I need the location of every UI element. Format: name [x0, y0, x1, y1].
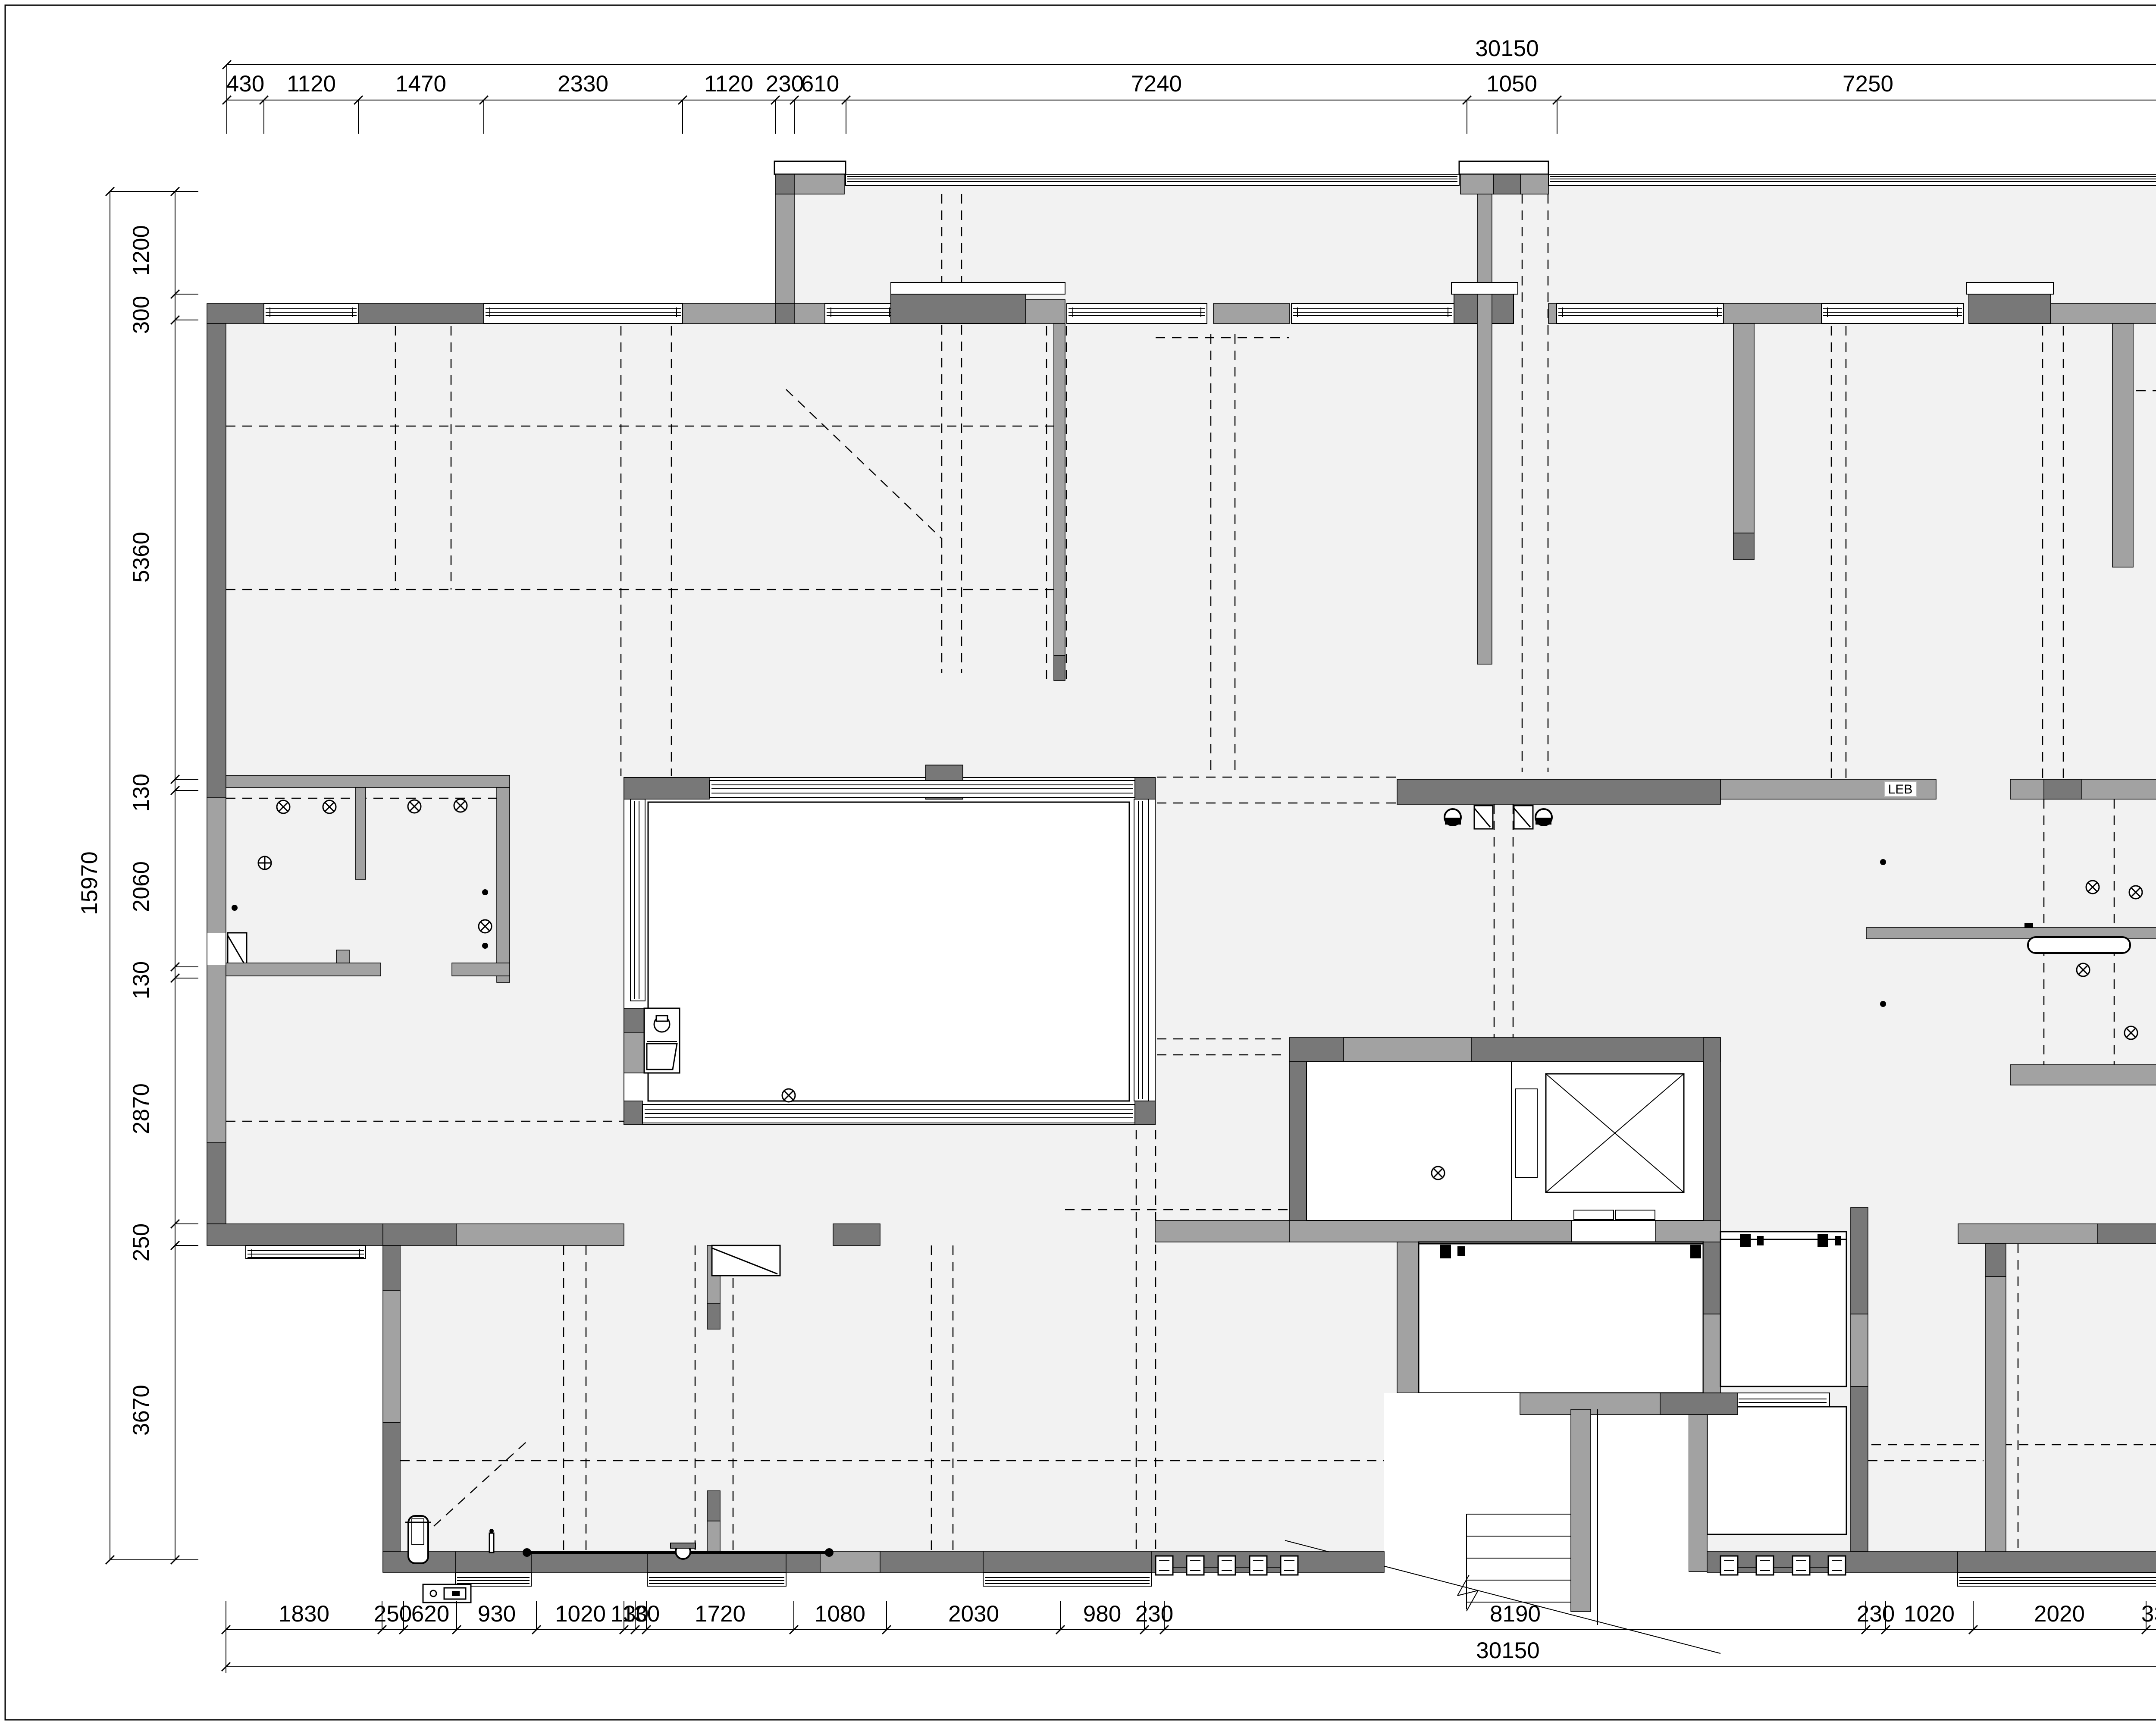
- svg-text:8190: 8190: [1490, 1601, 1541, 1627]
- svg-text:230: 230: [1857, 1601, 1895, 1627]
- svg-text:330: 330: [2141, 1601, 2156, 1627]
- svg-text:2020: 2020: [2034, 1601, 2085, 1627]
- svg-text:1080: 1080: [815, 1601, 865, 1627]
- svg-text:930: 930: [478, 1601, 516, 1627]
- svg-text:1020: 1020: [1904, 1601, 1955, 1627]
- svg-text:610: 610: [801, 71, 839, 97]
- svg-text:1020: 1020: [555, 1601, 606, 1627]
- svg-text:1050: 1050: [1486, 71, 1537, 97]
- svg-text:980: 980: [1083, 1601, 1121, 1627]
- svg-text:230: 230: [1135, 1601, 1173, 1627]
- svg-text:2330: 2330: [558, 71, 608, 97]
- svg-text:300: 300: [128, 296, 154, 334]
- svg-text:130: 130: [622, 1601, 660, 1627]
- svg-text:1830: 1830: [279, 1601, 329, 1627]
- svg-text:7250: 7250: [1843, 71, 1893, 97]
- svg-text:250: 250: [128, 1223, 154, 1261]
- svg-text:2870: 2870: [128, 1083, 154, 1134]
- svg-text:130: 130: [128, 774, 154, 812]
- svg-text:2060: 2060: [128, 861, 154, 912]
- svg-text:1720: 1720: [695, 1601, 746, 1627]
- svg-text:3670: 3670: [128, 1385, 154, 1436]
- svg-text:130: 130: [128, 961, 154, 999]
- svg-text:430: 430: [226, 71, 264, 97]
- svg-text:1470: 1470: [395, 71, 446, 97]
- svg-text:15970: 15970: [77, 851, 102, 915]
- svg-text:7240: 7240: [1131, 71, 1182, 97]
- svg-text:30150: 30150: [1476, 1638, 1539, 1663]
- svg-text:620: 620: [411, 1601, 449, 1627]
- svg-text:1120: 1120: [704, 71, 753, 97]
- svg-text:230: 230: [766, 71, 804, 97]
- svg-text:250: 250: [374, 1601, 412, 1627]
- svg-text:2030: 2030: [948, 1601, 999, 1627]
- svg-text:1200: 1200: [128, 225, 154, 276]
- svg-text:1120: 1120: [287, 71, 336, 97]
- svg-text:LEB: LEB: [1888, 782, 1913, 797]
- svg-text:30150: 30150: [1475, 36, 1539, 61]
- svg-text:5360: 5360: [128, 532, 154, 583]
